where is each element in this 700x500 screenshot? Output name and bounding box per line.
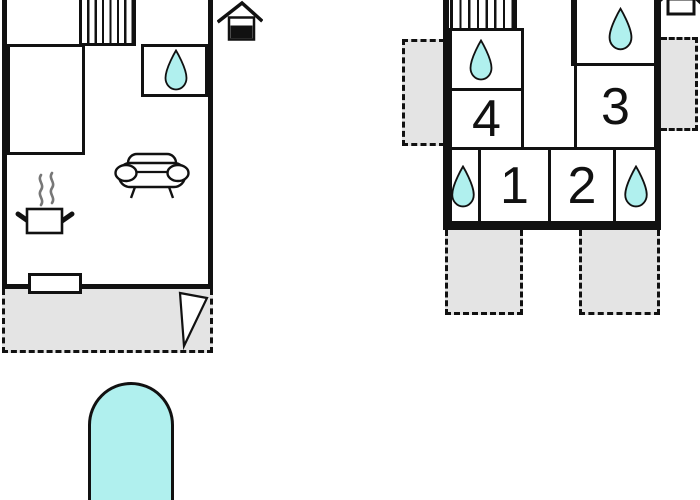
ground-left-wall — [2, 0, 7, 289]
sofa-icon — [114, 151, 190, 201]
corridor-right-wall — [571, 0, 575, 66]
water-drop-icon — [623, 165, 649, 208]
balcony-bottom-left — [445, 230, 523, 315]
water-drop-icon — [450, 165, 476, 208]
balcony-bottom-right — [579, 230, 660, 315]
ground-right-wall — [208, 0, 213, 289]
door-swing-icon — [177, 290, 211, 350]
house-ground-floor-icon — [217, 0, 263, 42]
pool — [88, 382, 174, 500]
staircase-icon — [79, 0, 136, 46]
water-drop-icon — [608, 6, 633, 52]
water-drop-icon — [468, 39, 494, 81]
terrace-door — [28, 273, 82, 294]
room-2-label: 2 — [548, 147, 616, 224]
room-1-label: 1 — [478, 147, 551, 224]
staircase-icon — [450, 0, 517, 31]
upper-bottom-wall — [443, 224, 661, 230]
water-drop-icon — [163, 49, 189, 91]
balcony-left — [402, 39, 445, 146]
house-upper-floor-icon — [656, 0, 700, 16]
stove-pot-icon — [14, 160, 76, 236]
floor-plan-scene: 4 3 1 2 — [0, 0, 700, 500]
room-3-label: 3 — [574, 63, 657, 150]
bed-icon — [7, 44, 85, 155]
balcony-right — [661, 37, 698, 131]
room-4-label: 4 — [449, 88, 524, 150]
